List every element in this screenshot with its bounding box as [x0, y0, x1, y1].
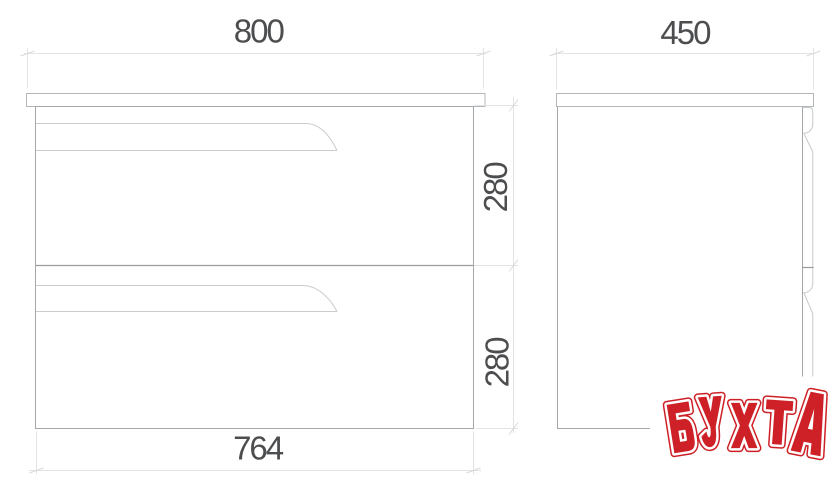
svg-text:800: 800	[234, 12, 285, 49]
svg-text:280: 280	[477, 162, 514, 213]
svg-text:280: 280	[479, 337, 516, 388]
svg-text:764: 764	[233, 430, 284, 467]
svg-text:450: 450	[660, 14, 711, 51]
